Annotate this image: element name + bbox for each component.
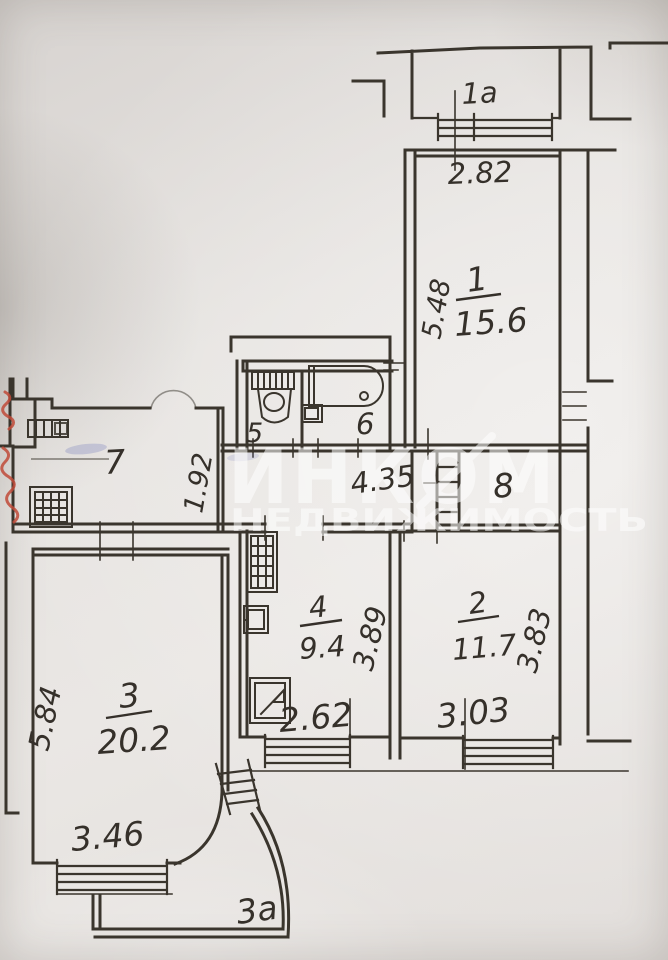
room-7-number: 7	[103, 442, 126, 482]
room-2-number: 2	[466, 585, 489, 621]
dim-top-window: 2.82	[447, 155, 513, 191]
scanned-floor-plan: ИНКОМ НЕДВИЖИМОСТЬ 1а 2.82 1 15.6 5.48 5…	[0, 0, 668, 960]
room-3-number: 3	[117, 675, 142, 716]
dim-room2-depth: 3.83	[510, 605, 559, 676]
dim-room4-width: 2.62	[277, 695, 354, 740]
watermark: ИНКОМ НЕДВИЖИМОСТЬ	[228, 432, 648, 539]
neighbor-walls	[0, 379, 18, 813]
sink-icon	[302, 405, 322, 422]
vent-grid-kitchen-icon	[30, 487, 72, 527]
room-3-area: 20.2	[96, 718, 172, 762]
vent-grid-room4-icon	[247, 532, 277, 592]
room-6-number: 6	[356, 407, 374, 441]
toilet-icon	[252, 372, 294, 423]
balcony-3a-label: 3а	[234, 888, 280, 932]
room-1-number: 1	[464, 258, 490, 300]
dim-room4-depth: 3.89	[346, 603, 395, 674]
room-1-area: 15.6	[453, 300, 529, 344]
room-4-area: 9.4	[298, 629, 346, 666]
room-8-number: 8	[491, 465, 515, 506]
dim-room2-width: 3.03	[435, 689, 512, 735]
dim-room3-width: 3.46	[69, 814, 146, 859]
dim-room1-depth: 5.48	[416, 277, 457, 342]
wall-box-icon	[244, 606, 268, 633]
dim-room3-depth: 5.84	[22, 683, 69, 753]
dim-kitchen-depth: 1.92	[178, 451, 219, 516]
floor-plan-svg: ИНКОМ НЕДВИЖИМОСТЬ 1а 2.82 1 15.6 5.48 5…	[0, 0, 668, 960]
room-2-area: 11.7	[451, 627, 519, 667]
watermark-subtitle: НЕДВИЖИМОСТЬ	[230, 503, 648, 539]
room-5-number: 5	[246, 418, 263, 449]
room-4-number: 4	[307, 589, 329, 625]
balcony-1a-label: 1а	[461, 75, 499, 111]
